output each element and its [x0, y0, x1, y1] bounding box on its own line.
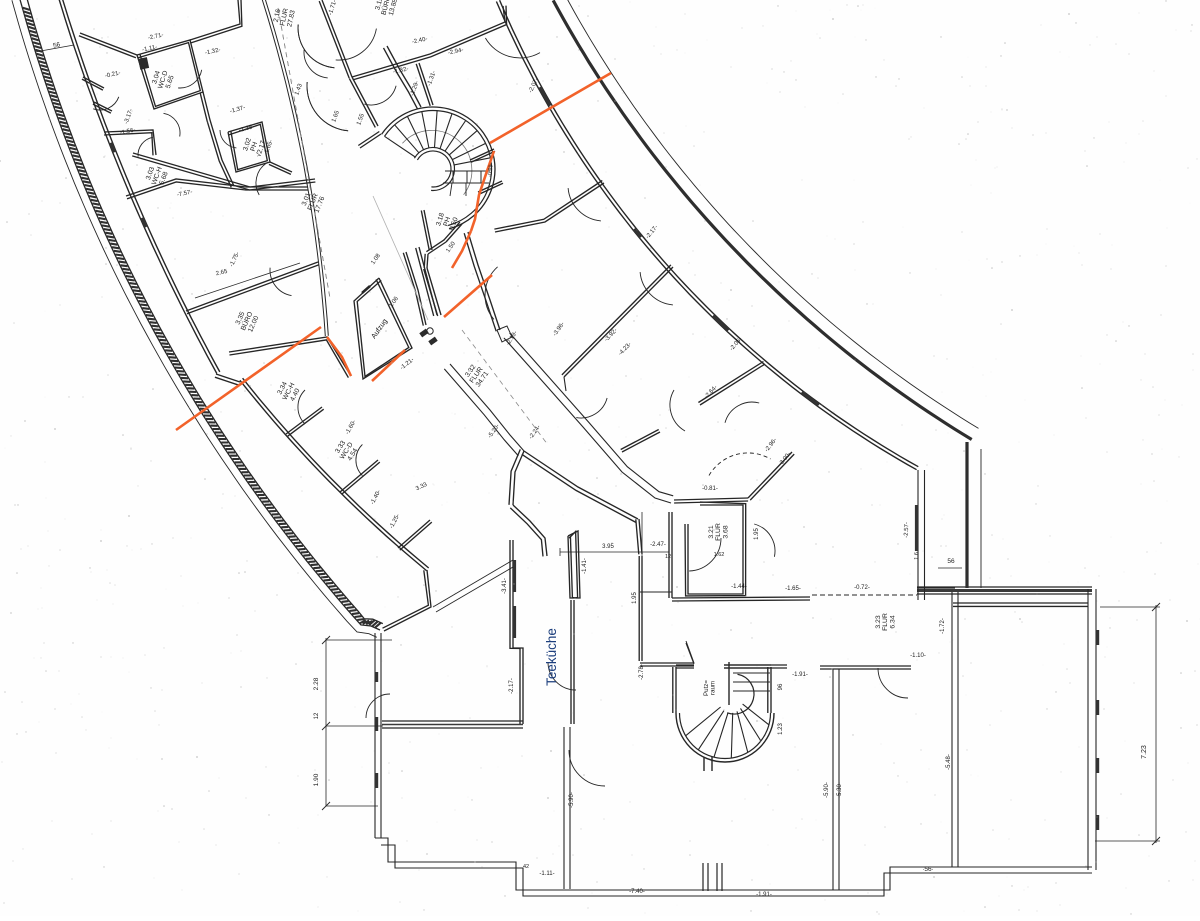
- svg-text:1.95: 1.95: [632, 592, 638, 604]
- svg-text:3.68: 3.68: [722, 525, 729, 538]
- svg-text:1.62: 1.62: [714, 552, 725, 558]
- svg-text:1.95: 1.95: [754, 528, 760, 540]
- svg-text:1.23: 1.23: [778, 723, 784, 735]
- svg-text:-2.17-: -2.17-: [509, 678, 515, 694]
- svg-text:56: 56: [947, 558, 955, 565]
- svg-text:-3.41-: -3.41-: [502, 578, 508, 594]
- svg-text:raum: raum: [710, 681, 717, 695]
- svg-text:FLUR: FLUR: [715, 523, 722, 541]
- svg-text:-1.41-: -1.41-: [582, 558, 588, 574]
- svg-text:-7.40-: -7.40-: [629, 889, 645, 895]
- svg-text:-5.90-: -5.90-: [824, 782, 830, 798]
- svg-text:7.23: 7.23: [1141, 745, 1148, 759]
- svg-text:-0.89-: -0.89-: [487, 162, 494, 177]
- svg-text:-1.44-: -1.44-: [731, 584, 747, 590]
- svg-text:3.95: 3.95: [602, 544, 614, 550]
- svg-text:·56·: ·56·: [922, 866, 934, 873]
- svg-text:1.90: 1.90: [313, 773, 320, 786]
- svg-text:-2.78-: -2.78-: [639, 664, 645, 680]
- svg-text:-5.90-: -5.90-: [569, 792, 575, 808]
- svg-text:-2.57-: -2.57-: [904, 522, 911, 538]
- svg-text:42: 42: [523, 864, 529, 870]
- svg-text:-1.11-: -1.11-: [539, 871, 554, 877]
- svg-text:-0.81-: -0.81-: [702, 486, 718, 492]
- svg-text:-1.72-: -1.72-: [940, 618, 946, 634]
- svg-text:-2.47-: -2.47-: [650, 542, 666, 548]
- svg-text:-1.65-: -1.65-: [785, 586, 801, 592]
- svg-text:FLUR: FLUR: [882, 613, 889, 631]
- svg-text:-1.10-: -1.10-: [910, 653, 926, 659]
- svg-text:3.23: 3.23: [875, 615, 882, 628]
- svg-text:6.34: 6.34: [889, 615, 896, 628]
- svg-text:-5.48-: -5.48-: [946, 754, 952, 770]
- svg-text:Teeküche: Teeküche: [544, 628, 559, 686]
- svg-text:-1.91-: -1.91-: [792, 672, 808, 678]
- svg-text:-0.72-: -0.72-: [854, 585, 870, 591]
- svg-text:2.28: 2.28: [313, 677, 320, 690]
- svg-text:12: 12: [314, 712, 320, 719]
- svg-text:1.6: 1.6: [914, 552, 920, 560]
- svg-text:3.21: 3.21: [708, 525, 715, 538]
- svg-text:-1.91-: -1.91-: [756, 892, 772, 898]
- svg-text:96: 96: [778, 683, 784, 690]
- svg-text:-5.30-: -5.30-: [837, 782, 843, 798]
- svg-text:12: 12: [665, 554, 671, 560]
